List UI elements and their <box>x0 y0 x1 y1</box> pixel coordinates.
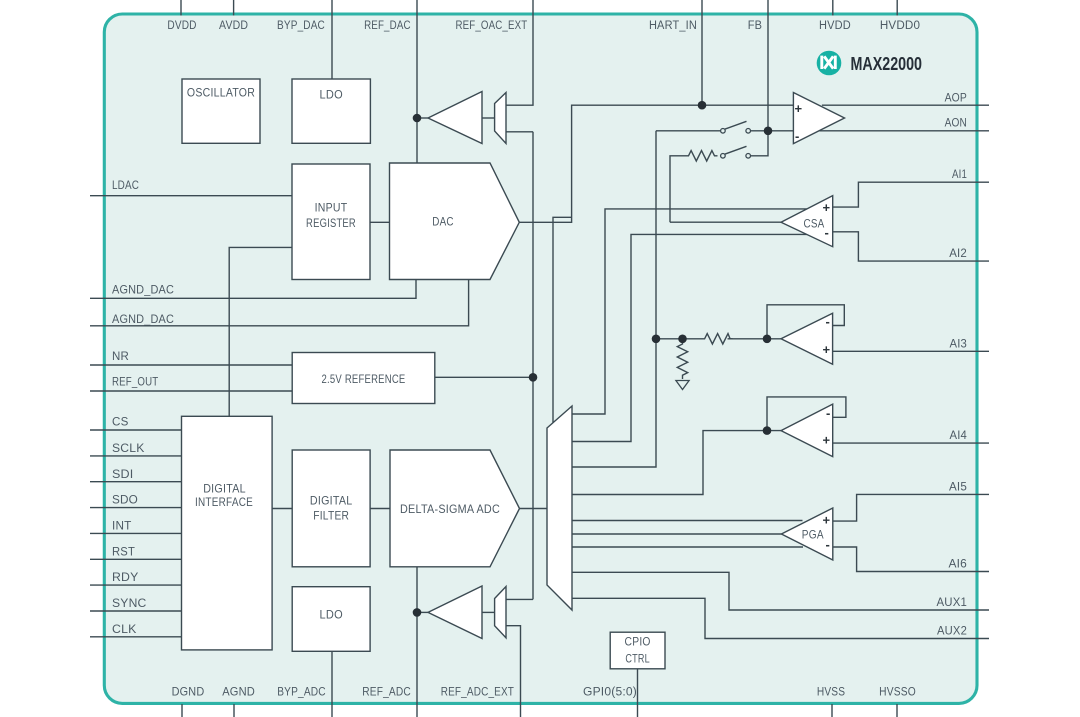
svg-text:RDY: RDY <box>112 570 139 584</box>
svg-text:AI4: AI4 <box>950 428 968 442</box>
svg-text:AOP: AOP <box>945 90 967 104</box>
svg-text:+: + <box>823 513 831 528</box>
svg-text:FILTER: FILTER <box>313 508 349 522</box>
svg-text:AI6: AI6 <box>949 557 968 571</box>
svg-text:-: - <box>826 537 830 552</box>
svg-text:-: - <box>825 225 829 240</box>
svg-text:+: + <box>823 200 831 215</box>
svg-text:REF_DAC: REF_DAC <box>364 18 411 32</box>
svg-text:AI2: AI2 <box>949 246 967 260</box>
svg-text:BYP_ADC: BYP_ADC <box>277 684 326 698</box>
svg-text:CSA: CSA <box>804 217 825 231</box>
svg-text:REF_ADC: REF_ADC <box>362 684 411 698</box>
svg-text:DVDD: DVDD <box>167 18 196 32</box>
svg-text:-: - <box>826 314 830 329</box>
svg-text:CTRL: CTRL <box>625 652 650 666</box>
svg-text:-: - <box>826 406 830 421</box>
svg-text:DIGITAL: DIGITAL <box>203 481 246 495</box>
svg-text:SDI: SDI <box>112 467 134 481</box>
svg-text:REGISTER: REGISTER <box>306 216 356 230</box>
svg-text:REF_OUT: REF_OUT <box>112 375 159 389</box>
svg-text:MAX22000: MAX22000 <box>851 53 923 74</box>
svg-text:INT: INT <box>112 518 132 532</box>
svg-text:DELTA-SIGMA ADC: DELTA-SIGMA ADC <box>400 502 500 516</box>
svg-text:SYNC: SYNC <box>112 596 147 610</box>
svg-text:+: + <box>795 101 803 116</box>
svg-text:HVDD: HVDD <box>819 18 851 32</box>
svg-text:HVDD0: HVDD0 <box>880 18 920 32</box>
svg-text:INTERFACE: INTERFACE <box>195 495 253 509</box>
svg-text:AON: AON <box>945 116 967 130</box>
svg-text:AGND_DAC: AGND_DAC <box>112 283 174 297</box>
svg-text:AI1: AI1 <box>952 167 967 181</box>
svg-text:BYP_DAC: BYP_DAC <box>277 18 325 32</box>
svg-text:DIGITAL: DIGITAL <box>310 493 353 507</box>
svg-text:REF_ADC_EXT: REF_ADC_EXT <box>441 684 515 698</box>
svg-text:AI5: AI5 <box>949 479 967 493</box>
svg-text:HVSSO: HVSSO <box>879 684 916 698</box>
svg-text:LDAC: LDAC <box>112 178 139 192</box>
svg-text:OSCILLATOR: OSCILLATOR <box>187 85 255 99</box>
svg-text:HVSS: HVSS <box>817 684 845 698</box>
svg-text:+: + <box>823 342 831 357</box>
svg-text:AGND: AGND <box>222 684 255 698</box>
svg-text:2.5V REFERENCE: 2.5V REFERENCE <box>322 372 406 386</box>
svg-text:DGND: DGND <box>172 684 205 698</box>
svg-text:NR: NR <box>112 349 129 363</box>
svg-text:GPI0(5:0): GPI0(5:0) <box>583 684 637 698</box>
svg-text:CLK: CLK <box>112 622 137 636</box>
svg-text:CPIO: CPIO <box>625 635 651 649</box>
svg-text:SDO: SDO <box>112 493 138 507</box>
svg-text:FB: FB <box>748 18 762 32</box>
svg-text:AGND_DAC: AGND_DAC <box>112 312 174 326</box>
svg-text:AVDD: AVDD <box>219 18 248 32</box>
svg-text:LDO: LDO <box>320 608 343 622</box>
svg-text:AUX2: AUX2 <box>937 624 967 638</box>
svg-text:REF_OAC_EXT: REF_OAC_EXT <box>456 18 528 32</box>
svg-text:LDO: LDO <box>320 88 343 102</box>
svg-text:AUX1: AUX1 <box>937 595 968 609</box>
svg-text:INPUT: INPUT <box>315 201 348 215</box>
svg-text:RST: RST <box>112 544 135 558</box>
svg-text:DAC: DAC <box>432 215 454 229</box>
svg-text:-: - <box>795 129 799 144</box>
svg-text:CS: CS <box>112 415 129 429</box>
svg-text:PGA: PGA <box>802 528 824 542</box>
svg-text:AI3: AI3 <box>950 336 968 350</box>
svg-text:HART_IN: HART_IN <box>649 18 697 32</box>
svg-text:+: + <box>823 433 831 448</box>
svg-text:SCLK: SCLK <box>112 441 145 455</box>
